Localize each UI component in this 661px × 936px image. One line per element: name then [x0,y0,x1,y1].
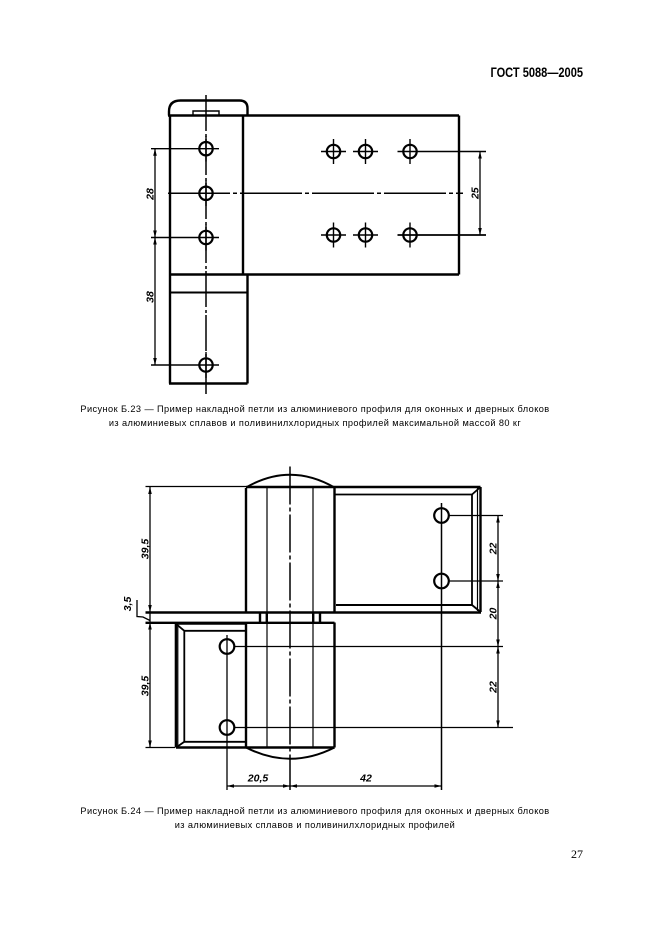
svg-text:20,5: 20,5 [247,773,269,785]
svg-text:22: 22 [488,543,500,556]
svg-text:42: 42 [359,773,372,785]
svg-text:38: 38 [145,291,157,303]
svg-text:39,5: 39,5 [140,539,152,560]
svg-text:20: 20 [488,608,500,621]
svg-text:22: 22 [488,681,500,694]
svg-text:28: 28 [145,188,157,201]
svg-text:3,5: 3,5 [122,597,134,612]
svg-text:39,5: 39,5 [140,676,152,697]
svg-text:25: 25 [470,187,482,200]
